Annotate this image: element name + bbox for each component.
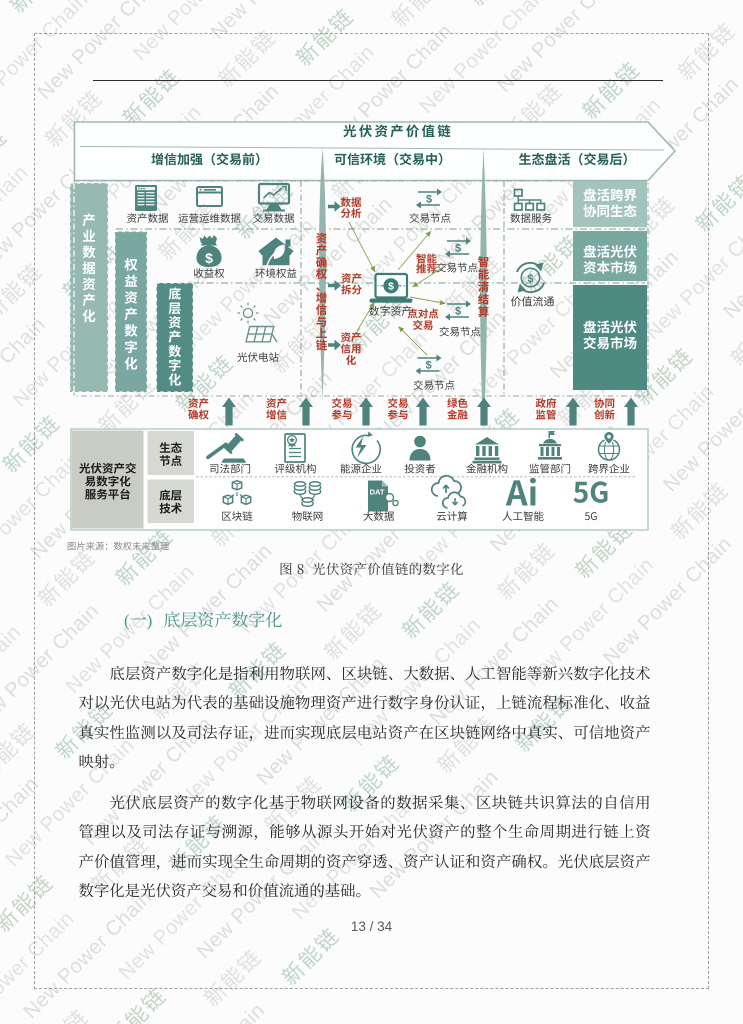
svg-text:交易节点: 交易节点 bbox=[413, 378, 455, 393]
svg-text:投资者: 投资者 bbox=[404, 462, 436, 477]
svg-text:数字资产: 数字资产 bbox=[369, 303, 413, 319]
svg-text:服务平台: 服务平台 bbox=[85, 487, 131, 503]
svg-text:$: $ bbox=[425, 357, 431, 373]
svg-text:协同生态: 协同生态 bbox=[583, 200, 637, 220]
svg-text:资本市场: 资本市场 bbox=[583, 257, 637, 277]
svg-text:$: $ bbox=[426, 191, 432, 207]
svg-text:资产数据: 资产数据 bbox=[127, 211, 169, 226]
svg-text:确权: 确权 bbox=[188, 408, 209, 423]
svg-text:$: $ bbox=[455, 303, 461, 319]
svg-text:增信加强（交易前）: 增信加强（交易前） bbox=[151, 149, 268, 168]
svg-text:$: $ bbox=[388, 281, 394, 293]
svg-text:金融: 金融 bbox=[447, 408, 468, 423]
svg-text:能源企业: 能源企业 bbox=[340, 462, 382, 477]
svg-text:收益权: 收益权 bbox=[193, 266, 225, 281]
svg-text:化: 化 bbox=[346, 353, 357, 368]
svg-text:拆分: 拆分 bbox=[341, 283, 362, 298]
svg-text:交易节点: 交易节点 bbox=[409, 211, 451, 226]
svg-text:交易数据: 交易数据 bbox=[253, 211, 295, 226]
svg-text:$: $ bbox=[205, 250, 213, 266]
svg-text:交易市场: 交易市场 bbox=[583, 332, 637, 352]
svg-text:$: $ bbox=[527, 270, 533, 286]
svg-text:金融机构: 金融机构 bbox=[466, 462, 508, 477]
svg-text:创新: 创新 bbox=[594, 408, 615, 423]
svg-text:交易节点: 交易节点 bbox=[439, 325, 481, 340]
svg-text:节点: 节点 bbox=[159, 453, 182, 469]
svg-text:价值流通: 价值流通 bbox=[511, 294, 555, 310]
svg-text:光伏资产价值链: 光伏资产价值链 bbox=[343, 120, 453, 140]
svg-text:增信: 增信 bbox=[266, 408, 287, 423]
svg-text:运营运维数据: 运营运维数据 bbox=[178, 211, 241, 226]
svg-text:底层资产数字化: 底层资产数字化 bbox=[168, 284, 181, 389]
svg-text:技术: 技术 bbox=[159, 501, 182, 517]
svg-text:区块链: 区块链 bbox=[221, 509, 253, 524]
svg-text:参与: 参与 bbox=[332, 408, 353, 423]
svg-text:光伏电站: 光伏电站 bbox=[237, 350, 279, 365]
svg-text:参与: 参与 bbox=[388, 408, 409, 423]
svg-text:生态盘活（交易后）: 生态盘活（交易后） bbox=[518, 149, 635, 168]
svg-text:大数据: 大数据 bbox=[363, 509, 395, 524]
svg-text:司法部门: 司法部门 bbox=[209, 462, 251, 477]
svg-text:智能清结算: 智能清结算 bbox=[478, 254, 490, 320]
svg-text:人工智能: 人工智能 bbox=[502, 509, 544, 524]
svg-text:DAT: DAT bbox=[370, 488, 385, 497]
svg-text:交易: 交易 bbox=[413, 318, 434, 333]
svg-text:物联网: 物联网 bbox=[292, 509, 324, 524]
svg-text:推荐: 推荐 bbox=[416, 262, 437, 277]
svg-text:云计算: 云计算 bbox=[436, 509, 468, 524]
svg-text:产业数据资产化: 产业数据资产化 bbox=[82, 209, 96, 325]
svg-text:数据服务: 数据服务 bbox=[510, 211, 552, 226]
svg-text:分析: 分析 bbox=[341, 206, 362, 221]
svg-text:资产确权、增信与上链: 资产确权、增信与上链 bbox=[316, 231, 328, 354]
svg-text:监管: 监管 bbox=[536, 408, 557, 423]
svg-text:5G: 5G bbox=[584, 509, 597, 524]
svg-text:评级机构: 评级机构 bbox=[275, 462, 317, 477]
svg-text:5G: 5G bbox=[573, 472, 610, 512]
svg-text:权益资产数字化: 权益资产数字化 bbox=[124, 253, 138, 372]
svg-text:环境权益: 环境权益 bbox=[255, 266, 297, 281]
svg-text:$: $ bbox=[455, 240, 461, 256]
svg-text:图片来源：数权未来整理: 图片来源：数权未来整理 bbox=[67, 539, 169, 553]
svg-text:可信环境（交易中）: 可信环境（交易中） bbox=[334, 149, 451, 168]
